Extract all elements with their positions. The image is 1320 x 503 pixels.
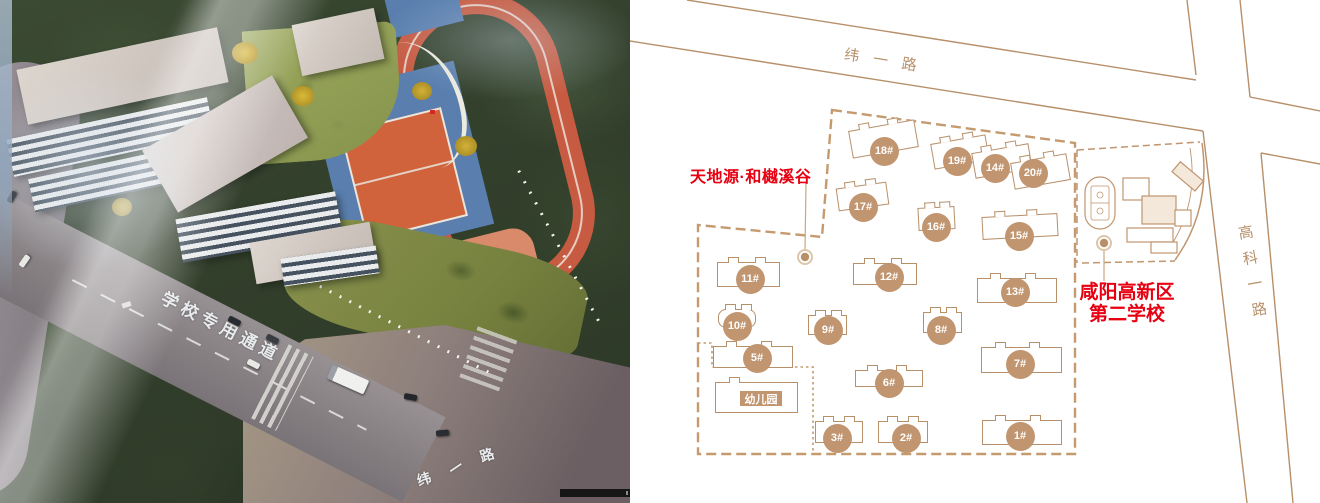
building-badge-20#: 20# bbox=[1019, 159, 1048, 188]
school-building-wing-roof bbox=[142, 75, 308, 212]
building-notch bbox=[896, 365, 907, 371]
building-notch bbox=[858, 122, 870, 130]
building-badge-16#: 16# bbox=[922, 213, 951, 242]
building-badge-6#: 6# bbox=[875, 369, 904, 398]
yellow-tree bbox=[292, 86, 314, 106]
building-badge-3#: 3# bbox=[823, 424, 852, 453]
building-notch bbox=[995, 415, 1006, 421]
building-notch bbox=[725, 304, 736, 310]
yellow-tree bbox=[232, 42, 258, 64]
building-notch bbox=[831, 310, 842, 316]
building-notch bbox=[865, 178, 877, 185]
building-notch bbox=[962, 131, 974, 139]
building-notch bbox=[728, 257, 739, 263]
building-notch bbox=[1030, 415, 1041, 421]
school-name-label: 咸阳高新区 第二学校 bbox=[1047, 282, 1207, 326]
building-notch bbox=[823, 416, 834, 422]
building-badge-2#: 2# bbox=[892, 424, 921, 453]
building-badge-11#: 11# bbox=[736, 265, 765, 294]
building-notch bbox=[1025, 273, 1036, 279]
building-notch bbox=[1027, 209, 1038, 216]
building-notch bbox=[990, 273, 1001, 279]
building-badge-8#: 8# bbox=[927, 316, 956, 345]
building-badge-19#: 19# bbox=[943, 147, 972, 176]
building-notch bbox=[741, 304, 752, 310]
building-notch bbox=[867, 365, 878, 371]
building-badge-18#: 18# bbox=[870, 137, 899, 166]
building-notch bbox=[1029, 342, 1040, 348]
building-notch bbox=[939, 136, 951, 144]
building-notch bbox=[887, 117, 899, 125]
project-name-label: 天地源·和樾溪谷 bbox=[690, 163, 811, 187]
building-notch bbox=[887, 416, 898, 422]
building-badge-9#: 9# bbox=[814, 316, 843, 345]
yellow-tree bbox=[112, 198, 132, 216]
building-notch bbox=[1043, 150, 1055, 158]
building-notch bbox=[726, 341, 737, 347]
building-badge-12#: 12# bbox=[875, 263, 904, 292]
building-notch bbox=[908, 416, 919, 422]
building-notch bbox=[755, 257, 766, 263]
building-notch bbox=[924, 202, 935, 209]
building-badge-10#: 10# bbox=[723, 312, 752, 341]
building-badge-14#: 14# bbox=[981, 154, 1010, 183]
building-badge-13#: 13# bbox=[1001, 278, 1030, 307]
building-badge-15#: 15# bbox=[1005, 222, 1034, 251]
building-badge-7#: 7# bbox=[1006, 350, 1035, 379]
building-notch bbox=[930, 307, 941, 313]
building-notch bbox=[994, 211, 1005, 218]
car bbox=[436, 429, 449, 436]
building-notch bbox=[844, 181, 856, 188]
building-notch bbox=[864, 258, 875, 264]
building-notch bbox=[844, 416, 855, 422]
school-name-line2: 第二学校 bbox=[1047, 304, 1207, 326]
site-plan: 18#19#14#20#17#16#15#11#12#13#10#9#8#5#7… bbox=[630, 0, 1320, 503]
building-notch bbox=[980, 145, 992, 153]
page: 学校专用通道 纬一路 bbox=[0, 0, 1320, 503]
building-notch bbox=[729, 377, 740, 383]
building-badge-1#: 1# bbox=[1006, 422, 1035, 451]
building-notch bbox=[995, 342, 1006, 348]
building-notch bbox=[939, 201, 950, 208]
building-notch bbox=[1004, 140, 1016, 148]
school-name-line1: 咸阳高新区 bbox=[1047, 282, 1207, 304]
building-badge-17#: 17# bbox=[849, 193, 878, 222]
plan-buildings-layer: 18#19#14#20#17#16#15#11#12#13#10#9#8#5#7… bbox=[630, 0, 1320, 503]
kindergarten-label: 幼儿园 bbox=[740, 391, 782, 406]
yellow-tree bbox=[455, 136, 477, 156]
yellow-tree bbox=[412, 82, 432, 100]
aerial-rendering-photo: 学校专用通道 纬一路 bbox=[0, 0, 631, 503]
building-notch bbox=[946, 307, 957, 313]
building-badge-5#: 5# bbox=[743, 344, 772, 373]
building-notch bbox=[815, 310, 826, 316]
